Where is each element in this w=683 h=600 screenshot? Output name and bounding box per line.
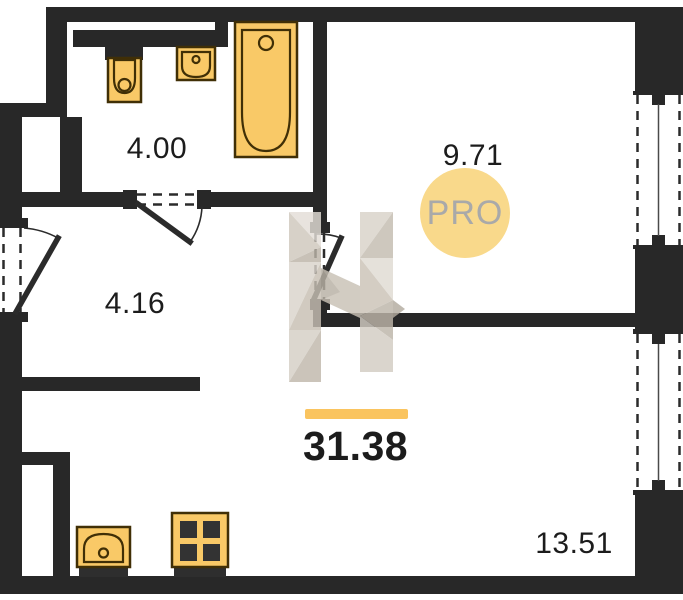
bathroom-door-jamb-right <box>197 190 211 209</box>
window-sill <box>633 245 683 249</box>
window-sill <box>633 329 683 334</box>
floor-plan-drawing <box>0 0 683 600</box>
wall-left-upper <box>0 103 22 218</box>
wall-left-lower <box>0 322 22 584</box>
total-area-accent-bar <box>305 409 408 419</box>
area-label-hallway: 4.16 <box>105 287 165 321</box>
window-frame-block <box>652 235 665 245</box>
window-frame-block <box>652 95 665 105</box>
kitchen-sink-drain <box>99 549 108 558</box>
bathroom-door-jamb-left <box>123 190 137 209</box>
wall-bottom <box>0 576 683 594</box>
bathroom-door <box>137 195 202 243</box>
area-label-bathroom: 4.00 <box>127 132 187 166</box>
bathroom-inner-top-wall <box>73 30 215 47</box>
bathroom-inner-connector <box>215 22 228 47</box>
window-frame-block <box>652 334 665 344</box>
door-leaf <box>138 204 190 242</box>
total-area-value: 31.38 <box>303 424 408 469</box>
pro-badge-text: PRO <box>427 194 504 233</box>
bathroom-sink <box>177 47 215 80</box>
bathroom-bottom-wall-left <box>22 192 127 207</box>
entrance-door <box>4 228 59 312</box>
bathtub-drain <box>259 36 273 50</box>
kitchen-sink <box>77 527 130 577</box>
shaft-wall-right <box>53 452 70 578</box>
room-top-right-window <box>633 91 683 249</box>
pier-right-3 <box>635 494 683 586</box>
total-area-block: 31.38 <box>303 409 408 469</box>
divider-wall-upper <box>313 22 327 222</box>
door-swing-arc <box>190 206 202 242</box>
pro-badge: PRO <box>420 168 510 258</box>
toilet <box>108 58 141 102</box>
bathroom-bottom-wall-right <box>211 192 313 207</box>
wall-topleft-vertical <box>46 7 67 117</box>
door-swing-arc <box>24 228 58 238</box>
window-sill <box>633 91 683 95</box>
stove-burner <box>180 544 197 561</box>
entrance-jamb-top <box>0 218 28 228</box>
room-bottom-right-window <box>633 329 683 495</box>
sink-drain <box>193 56 200 63</box>
stove-burner <box>203 521 220 538</box>
wall-top <box>46 7 683 22</box>
floor-plan: 4.00 9.71 4.16 13.51 31.38 PRO <box>0 0 683 600</box>
stove-burner <box>180 521 197 538</box>
h-logo-watermark <box>289 212 405 382</box>
window-sill <box>633 490 683 495</box>
area-label-room-bottom-right: 13.51 <box>535 527 613 561</box>
window-frame-block <box>652 480 665 490</box>
pier-right-1 <box>635 22 683 91</box>
toilet-flush-circle <box>119 79 131 91</box>
kitchen-partition <box>22 377 200 391</box>
bathtub <box>235 22 297 157</box>
bathroom-left-wall <box>60 117 82 196</box>
stove-burner <box>203 544 220 561</box>
pier-right-2 <box>635 249 683 329</box>
door-leaf <box>16 238 58 312</box>
stove <box>172 513 228 577</box>
